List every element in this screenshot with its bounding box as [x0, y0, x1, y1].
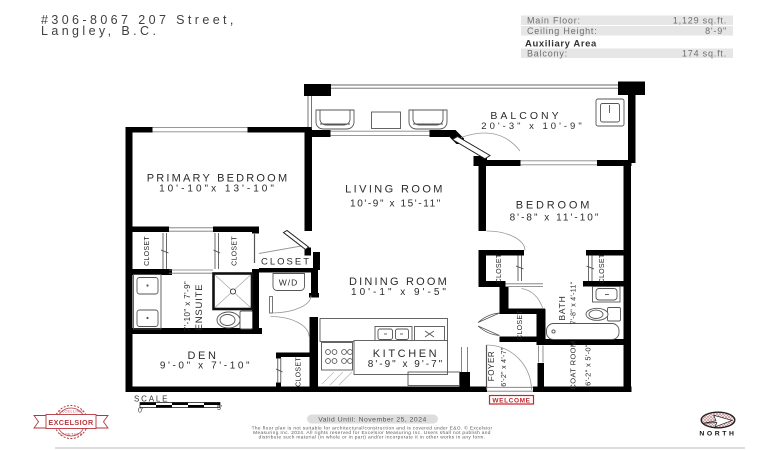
svg-text:distribute such material (in w: distribute such material (in whole or in…	[259, 435, 486, 441]
svg-text:8'-8" x 11'-10": 8'-8" x 11'-10"	[510, 213, 601, 224]
svg-text:FOYER: FOYER	[487, 351, 496, 382]
svg-text:10'-9" x 15'-11": 10'-9" x 15'-11"	[350, 199, 442, 210]
svg-text:NORTH: NORTH	[699, 431, 736, 438]
svg-text:COAT ROOM: COAT ROOM	[569, 340, 578, 389]
svg-text:0': 0'	[138, 408, 143, 415]
svg-text:W/D: W/D	[279, 278, 299, 288]
svg-text:7'-10" x 7'-9": 7'-10" x 7'-9"	[183, 281, 192, 331]
svg-text:CLOSET: CLOSET	[144, 236, 151, 266]
svg-text:CLOSET: CLOSET	[261, 257, 311, 268]
svg-text:Balcony:: Balcony:	[527, 49, 568, 59]
svg-text:BEDROOM: BEDROOM	[516, 200, 592, 212]
svg-text:10'-10"x 13'-10": 10'-10"x 13'-10"	[159, 184, 277, 195]
svg-text:Main Floor:: Main Floor:	[527, 16, 581, 26]
svg-text:6'-2" x 4'-7": 6'-2" x 4'-7"	[501, 347, 508, 386]
svg-text:CLOSET: CLOSET	[232, 236, 239, 266]
svg-text:7'-8" x 4'-11": 7'-8" x 4'-11"	[571, 281, 578, 324]
svg-text:8'-9" x 9'-7": 8'-9" x 9'-7"	[368, 359, 444, 370]
svg-text:Langley, B.C.: Langley, B.C.	[41, 24, 159, 38]
svg-text:EXCELLING: EXCELLING	[59, 410, 84, 414]
svg-text:BATH: BATH	[557, 295, 567, 320]
svg-text:6'-2" x 5'-0": 6'-2" x 5'-0"	[584, 344, 593, 386]
svg-text:TOGETHER: TOGETHER	[59, 433, 83, 437]
svg-text:9'-0" x 7'-10": 9'-0" x 7'-10"	[160, 361, 252, 372]
svg-text:Ceiling Height:: Ceiling Height:	[527, 26, 598, 36]
svg-text:CLOSET: CLOSET	[517, 310, 524, 340]
svg-text:8'-9": 8'-9"	[705, 26, 727, 36]
svg-text:ENSUITE: ENSUITE	[194, 284, 205, 331]
svg-text:174 sq.ft.: 174 sq.ft.	[682, 49, 727, 59]
svg-text:10'-1" x 9'-5": 10'-1" x 9'-5"	[351, 287, 449, 298]
svg-text:20'-3" x 10'-9": 20'-3" x 10'-9"	[481, 121, 584, 132]
svg-text:Valid Until: November 25, 2024: Valid Until: November 25, 2024	[318, 416, 427, 423]
svg-text:CLOSET: CLOSET	[496, 253, 503, 283]
svg-text:WELCOME: WELCOME	[492, 397, 530, 404]
svg-text:1,129 sq.ft.: 1,129 sq.ft.	[673, 16, 727, 26]
svg-text:CLOSET: CLOSET	[296, 357, 303, 387]
svg-text:LIVING ROOM: LIVING ROOM	[345, 184, 445, 196]
svg-text:CLOSET: CLOSET	[599, 253, 606, 283]
svg-text:5': 5'	[217, 405, 222, 412]
svg-text:EXCELSIOR: EXCELSIOR	[48, 418, 94, 427]
